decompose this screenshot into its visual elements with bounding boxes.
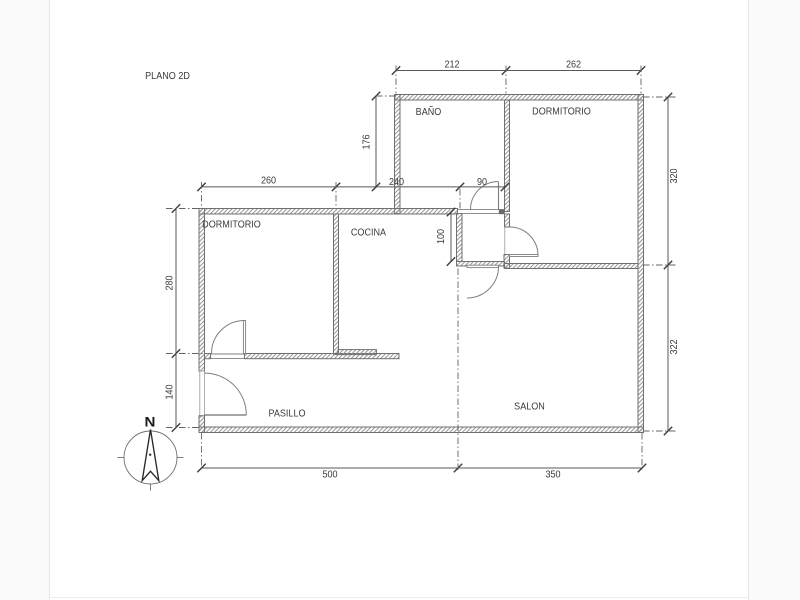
svg-text:DORMITORIO: DORMITORIO: [532, 106, 591, 118]
svg-text:140: 140: [164, 384, 176, 400]
svg-text:COCINA: COCINA: [351, 227, 387, 239]
svg-text:280: 280: [164, 275, 176, 291]
svg-text:PLANO 2D: PLANO 2D: [145, 71, 190, 83]
svg-text:322: 322: [669, 339, 681, 354]
svg-text:350: 350: [545, 469, 561, 481]
svg-text:BAÑO: BAÑO: [416, 107, 442, 119]
svg-text:500: 500: [322, 469, 338, 481]
svg-text:100: 100: [436, 228, 448, 244]
svg-text:PASILLO: PASILLO: [268, 408, 305, 420]
svg-text:SALON: SALON: [514, 401, 545, 413]
svg-text:320: 320: [669, 168, 681, 184]
svg-text:90: 90: [477, 177, 488, 189]
svg-text:262: 262: [566, 59, 581, 71]
svg-text:212: 212: [444, 59, 459, 71]
svg-text:DORMITORIO: DORMITORIO: [202, 219, 261, 231]
svg-text:N: N: [145, 415, 156, 430]
svg-text:260: 260: [261, 175, 277, 187]
svg-text:240: 240: [389, 177, 405, 189]
svg-text:176: 176: [361, 134, 373, 149]
